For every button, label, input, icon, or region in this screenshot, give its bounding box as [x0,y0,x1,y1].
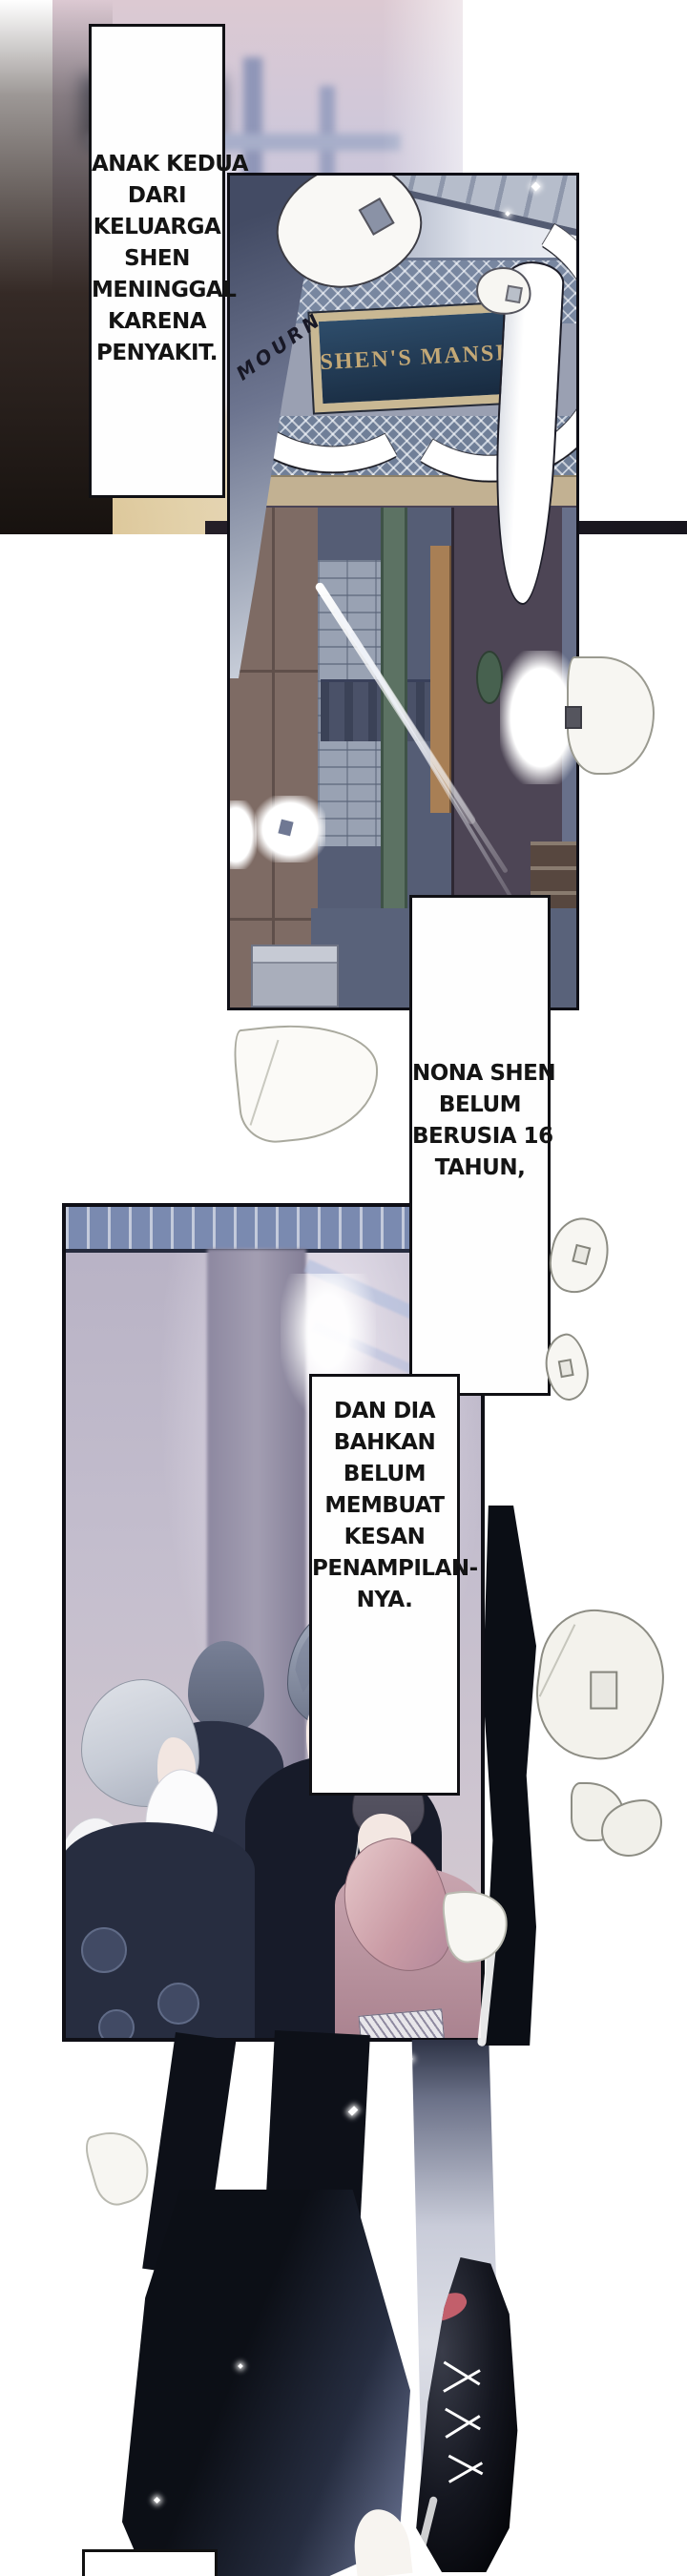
narration-line: DAN DIA [312,1396,457,1427]
narration-line: NYA. [312,1585,457,1616]
spirit-money-hole [358,197,394,236]
narration-line: DARI [92,180,222,212]
sparkle [72,2527,77,2533]
narration-line: TAHUN, [412,1153,548,1184]
spirit-money-hole [565,706,582,729]
dress-medallion [81,1927,127,1973]
spirit-money-glow-edge [227,800,257,869]
narration-line: BAHKAN [312,1427,457,1459]
stone-pedestal [251,945,339,1008]
spirit-money-bottom-left [81,2123,156,2211]
spirit-money-large-right [528,1603,673,1768]
narration-box-1: ANAK KEDUA DARI KELUARGA SHEN MENINGGAL … [89,24,225,498]
boot-shine [417,2496,438,2553]
petal-fold-line [250,1040,280,1126]
spirit-money-edge-right [567,656,655,775]
panel-mansion-gate: SHEN'S MANSION MOURN [227,173,579,1010]
pedestal-top [253,946,337,964]
narration-line: BELUM [312,1459,457,1490]
narration-box-3: DAN DIA BAHKAN BELUM MEMBUAT KESAN PENAM… [309,1374,460,1796]
narration-line: PENAMPILAN- [312,1553,457,1585]
dress-medallion [98,2009,135,2042]
narration-line: MEMBUAT [312,1490,457,1522]
narration-line: BELUM [412,1090,548,1121]
next-narration-box-partial [82,2549,218,2576]
elder-dark-dress [62,1822,255,2042]
spirit-money-small [542,1212,616,1299]
dress-medallion [157,1983,199,2025]
spirit-money-hole [572,1244,592,1265]
narration-line: ANAK KEDUA [92,149,222,180]
narration-line: PENYAKIT. [92,338,222,369]
narration-line: KARENA [92,306,222,338]
narration-line: NONA SHEN [412,1058,548,1090]
spirit-money-hole [558,1359,574,1378]
narration-box-2: NONA SHEN BELUM BERUSIA 16 TAHUN, [409,895,551,1396]
spirit-money-hole [590,1671,617,1709]
narration-line: BERUSIA 16 [412,1121,548,1153]
narration-line: MENINGGAL [92,275,222,306]
narration-line: SHEN [92,243,222,275]
petal-fold-line [539,1625,575,1697]
spirit-money-hole [505,284,523,303]
sparkle [407,2056,413,2062]
narration-line: KESAN [312,1522,457,1553]
spirit-money-fan [231,1016,385,1147]
narration-line: KELUARGA [92,212,222,243]
manga-page: ANAK KEDUA DARI KELUARGA SHEN MENINGGAL … [0,0,687,2576]
sparkle [560,2258,567,2265]
sparkle [89,2464,96,2472]
door-plaque [476,651,503,704]
